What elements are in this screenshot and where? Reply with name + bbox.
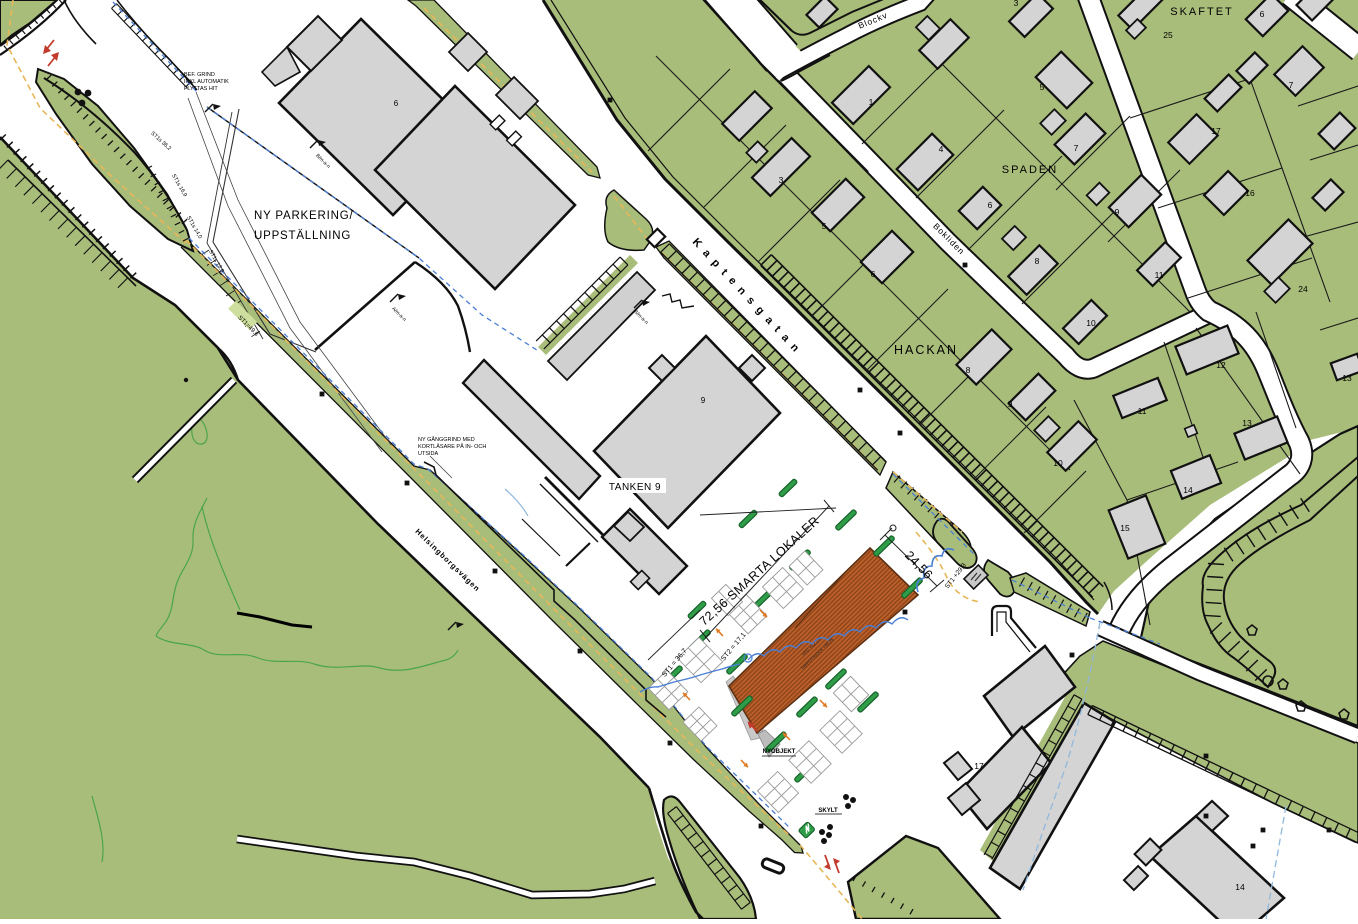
svg-text:INKL AUTOMATIK: INKL AUTOMATIK — [184, 79, 229, 85]
svg-text:3: 3 — [1014, 0, 1019, 8]
svg-text:24: 24 — [1298, 284, 1308, 294]
svg-text:12: 12 — [1216, 360, 1226, 370]
svg-text:25: 25 — [1163, 30, 1173, 40]
svg-text:NYOBJEKT: NYOBJEKT — [763, 749, 796, 755]
svg-text:11: 11 — [1155, 270, 1164, 280]
svg-text:9: 9 — [1008, 399, 1013, 409]
svg-text:SKAFTET: SKAFTET — [1170, 6, 1234, 18]
svg-text:6: 6 — [988, 200, 993, 210]
svg-text:8: 8 — [1035, 256, 1040, 266]
svg-text:SPADEN: SPADEN — [1002, 164, 1058, 176]
svg-text:BEF. GRIND: BEF. GRIND — [184, 72, 215, 78]
svg-text:5: 5 — [1040, 82, 1045, 92]
svg-text:6: 6 — [394, 99, 399, 108]
svg-text:9: 9 — [1115, 207, 1120, 217]
svg-text:4: 4 — [939, 144, 944, 154]
svg-text:16: 16 — [1245, 188, 1255, 198]
svg-text:UPPSTÄLLNING: UPPSTÄLLNING — [254, 230, 351, 242]
svg-text:17: 17 — [1211, 126, 1221, 136]
svg-text:NY PARKERING/: NY PARKERING/ — [254, 210, 353, 222]
svg-text:10: 10 — [1053, 458, 1063, 468]
svg-text:13: 13 — [1342, 373, 1352, 383]
svg-text:HACKAN: HACKAN — [894, 343, 958, 357]
svg-text:14: 14 — [1235, 882, 1245, 892]
svg-text:SKYLT: SKYLT — [818, 808, 838, 814]
svg-text:15: 15 — [1120, 523, 1130, 533]
svg-text:7: 7 — [1289, 80, 1294, 90]
svg-text:5: 5 — [822, 221, 827, 231]
svg-text:UTSIDA: UTSIDA — [418, 451, 439, 457]
svg-text:17: 17 — [974, 761, 984, 771]
svg-text:KORTLÄSARE PÅ IN- OCH: KORTLÄSARE PÅ IN- OCH — [418, 443, 486, 450]
svg-text:10: 10 — [1086, 318, 1096, 328]
svg-text:8: 8 — [966, 365, 971, 375]
svg-text:TANKEN 9: TANKEN 9 — [609, 482, 661, 493]
svg-text:7: 7 — [1074, 143, 1079, 153]
svg-text:11: 11 — [1138, 406, 1147, 416]
svg-text:13: 13 — [1242, 418, 1252, 428]
svg-text:3: 3 — [779, 175, 784, 185]
svg-text:1: 1 — [869, 97, 874, 107]
svg-text:6: 6 — [871, 269, 876, 279]
svg-text:14: 14 — [1183, 485, 1193, 495]
svg-text:6: 6 — [1260, 9, 1265, 19]
svg-text:FLYTTAS HIT: FLYTTAS HIT — [184, 86, 218, 92]
svg-text:NY GÅNGGRIND MED: NY GÅNGGRIND MED — [418, 436, 475, 443]
svg-text:9: 9 — [701, 396, 706, 405]
